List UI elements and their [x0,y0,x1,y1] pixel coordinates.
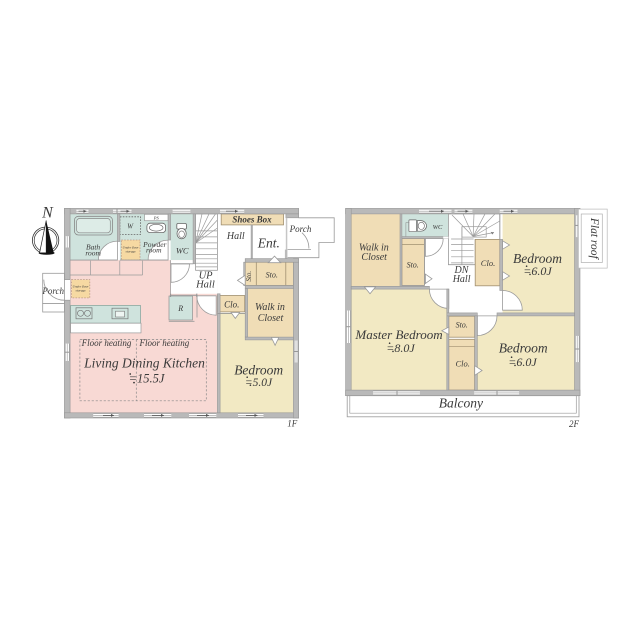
svg-text:=6.0J: =6.0J [523,264,552,278]
svg-text:Balcony: Balcony [439,396,483,411]
svg-text:Clo.: Clo. [455,359,469,369]
svg-text:storage: storage [126,250,137,254]
svg-text:Hall: Hall [452,274,471,285]
svg-text:Master Bedroom: Master Bedroom [354,327,442,342]
svg-text:Sto.: Sto. [407,260,419,269]
svg-text:Living Dining Kitchen: Living Dining Kitchen [83,356,205,371]
svg-text:=8.0J: =8.0J [386,341,415,355]
svg-text:Bedroom: Bedroom [499,341,548,356]
svg-text:Porch: Porch [41,286,64,296]
svg-text:Walk in: Walk in [255,302,285,313]
svg-text:storage: storage [76,289,87,293]
svg-text:Clo.: Clo. [224,299,239,309]
svg-text:Porch: Porch [289,224,312,234]
svg-text:room: room [146,246,162,255]
svg-text:Sto.: Sto. [456,321,468,330]
svg-text:Shoes Box: Shoes Box [232,214,272,224]
svg-text:Closet: Closet [258,313,284,324]
svg-text:Hall: Hall [195,280,215,291]
svg-text:Closet: Closet [361,252,387,263]
svg-text:Floor heating: Floor heating [139,338,190,348]
svg-text:1F: 1F [287,419,298,429]
svg-text:N: N [41,204,54,221]
svg-text:Flat roof: Flat roof [588,217,600,261]
svg-text:PS: PS [153,215,160,220]
svg-text:Sto.: Sto. [266,270,278,279]
svg-text:WC: WC [433,224,443,231]
svg-text:=6.0J: =6.0J [508,355,537,369]
svg-text:WC: WC [176,246,189,256]
svg-text:Clo.: Clo. [481,258,495,268]
svg-text:Bedroom: Bedroom [234,363,283,378]
svg-text:=5.0J: =5.0J [245,377,273,389]
svg-text:2F: 2F [569,419,580,429]
svg-text:room: room [85,249,101,258]
svg-text:R: R [177,304,183,313]
svg-text:Hall: Hall [226,231,245,242]
svg-text:Ent.: Ent. [257,236,280,251]
svg-text:Floor heating: Floor heating [81,338,132,348]
svg-text:Sto.: Sto. [245,271,253,282]
